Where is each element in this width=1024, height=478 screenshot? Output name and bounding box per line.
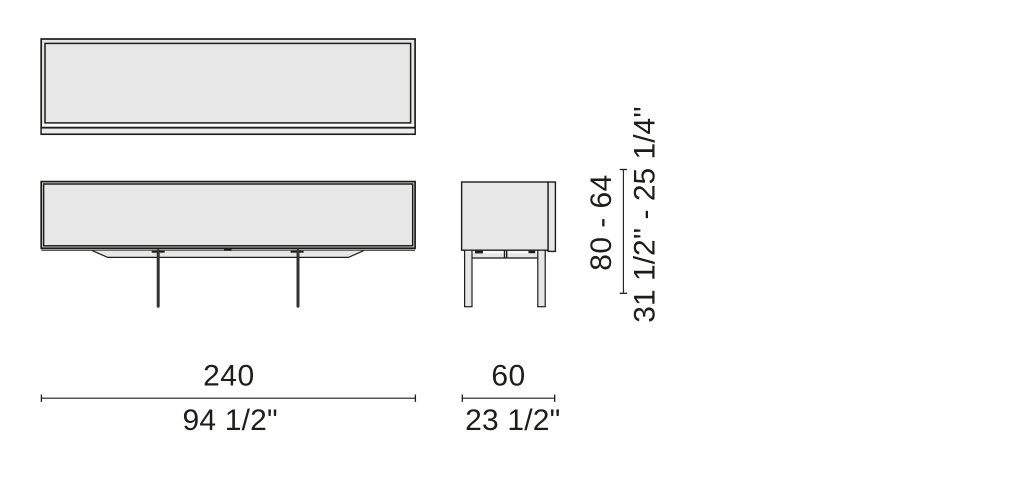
svg-text:31 1/2'' - 25 1/4'': 31 1/2'' - 25 1/4'' [629,106,662,322]
svg-text:80 - 64: 80 - 64 [585,174,618,271]
svg-text:23 1/2": 23 1/2" [465,404,560,437]
svg-text:60: 60 [491,360,525,393]
svg-text:240: 240 [203,360,255,393]
svg-text:94 1/2": 94 1/2" [182,404,277,437]
